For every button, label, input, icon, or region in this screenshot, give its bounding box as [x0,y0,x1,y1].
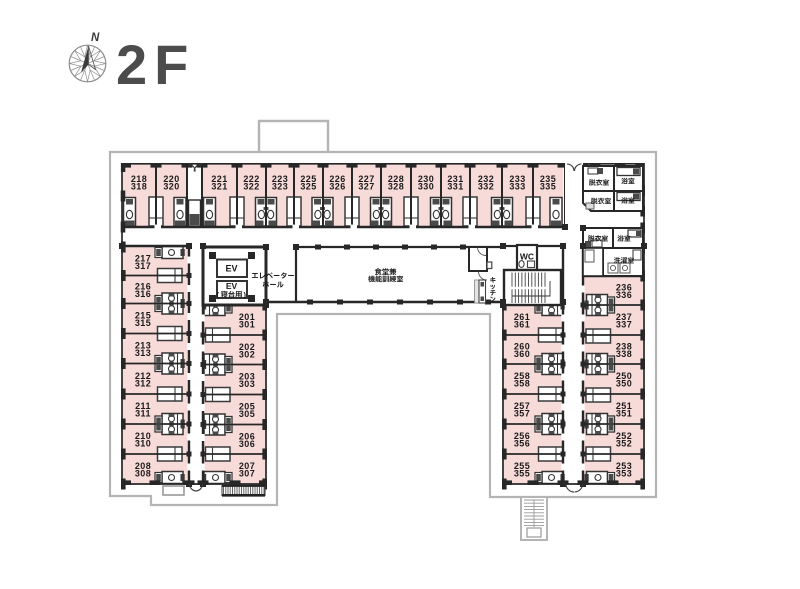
svg-text:318: 318 [131,182,147,192]
svg-text:321: 321 [211,182,227,192]
svg-text:306: 306 [239,439,255,449]
svg-text:326: 326 [329,182,345,192]
svg-text:352: 352 [616,439,632,449]
svg-text:303: 303 [239,379,255,389]
svg-text:327: 327 [358,182,374,192]
svg-text:337: 337 [616,320,632,330]
svg-text:N: N [91,32,100,44]
svg-text:310: 310 [135,439,151,449]
svg-text:350: 350 [616,379,632,389]
svg-text:316: 316 [135,289,151,299]
svg-text:2F: 2F [116,33,195,96]
svg-text:301: 301 [239,320,255,330]
svg-text:328: 328 [388,182,404,192]
svg-text:356: 356 [514,439,530,449]
svg-text:302: 302 [239,349,255,359]
svg-text:308: 308 [135,469,151,479]
svg-text:335: 335 [540,182,556,192]
svg-text:307: 307 [239,469,255,479]
svg-text:336: 336 [616,290,632,300]
svg-text:WC: WC [520,252,534,262]
svg-text:330: 330 [418,182,434,192]
svg-text:361: 361 [514,320,530,330]
svg-text:331: 331 [447,182,463,192]
svg-text:311: 311 [135,409,151,419]
svg-text:323: 323 [272,182,288,192]
svg-text:332: 332 [478,182,494,192]
svg-text:353: 353 [616,469,632,479]
svg-text:317: 317 [135,261,151,271]
svg-text:333: 333 [509,182,525,192]
svg-text:EV: EV [225,264,237,274]
svg-text:313: 313 [135,348,151,358]
svg-text:338: 338 [616,349,632,359]
svg-text:320: 320 [163,182,179,192]
svg-text:351: 351 [616,409,632,419]
svg-text:312: 312 [135,378,151,388]
svg-text:357: 357 [514,409,530,419]
svg-text:355: 355 [514,469,530,479]
svg-text:360: 360 [514,349,530,359]
svg-text:315: 315 [135,318,151,328]
svg-text:358: 358 [514,379,530,389]
svg-text:325: 325 [300,182,316,192]
svg-text:305: 305 [239,409,255,419]
svg-text:322: 322 [243,182,259,192]
svg-text:EV: EV [226,281,238,291]
